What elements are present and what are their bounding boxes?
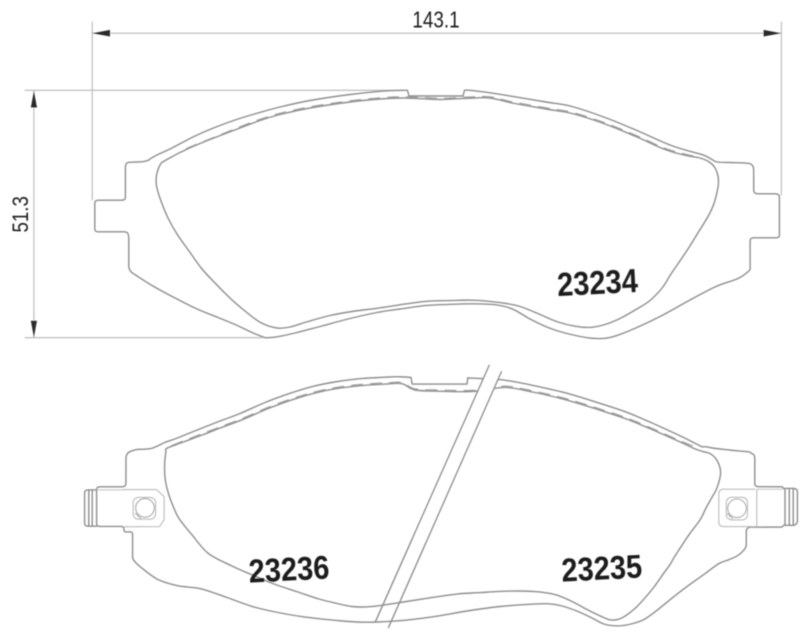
svg-text:23235: 23235 <box>560 548 643 589</box>
svg-text:23234: 23234 <box>556 262 639 303</box>
svg-text:23236: 23236 <box>248 549 331 590</box>
svg-text:143.1: 143.1 <box>412 8 459 33</box>
svg-text:51.3: 51.3 <box>10 196 34 232</box>
